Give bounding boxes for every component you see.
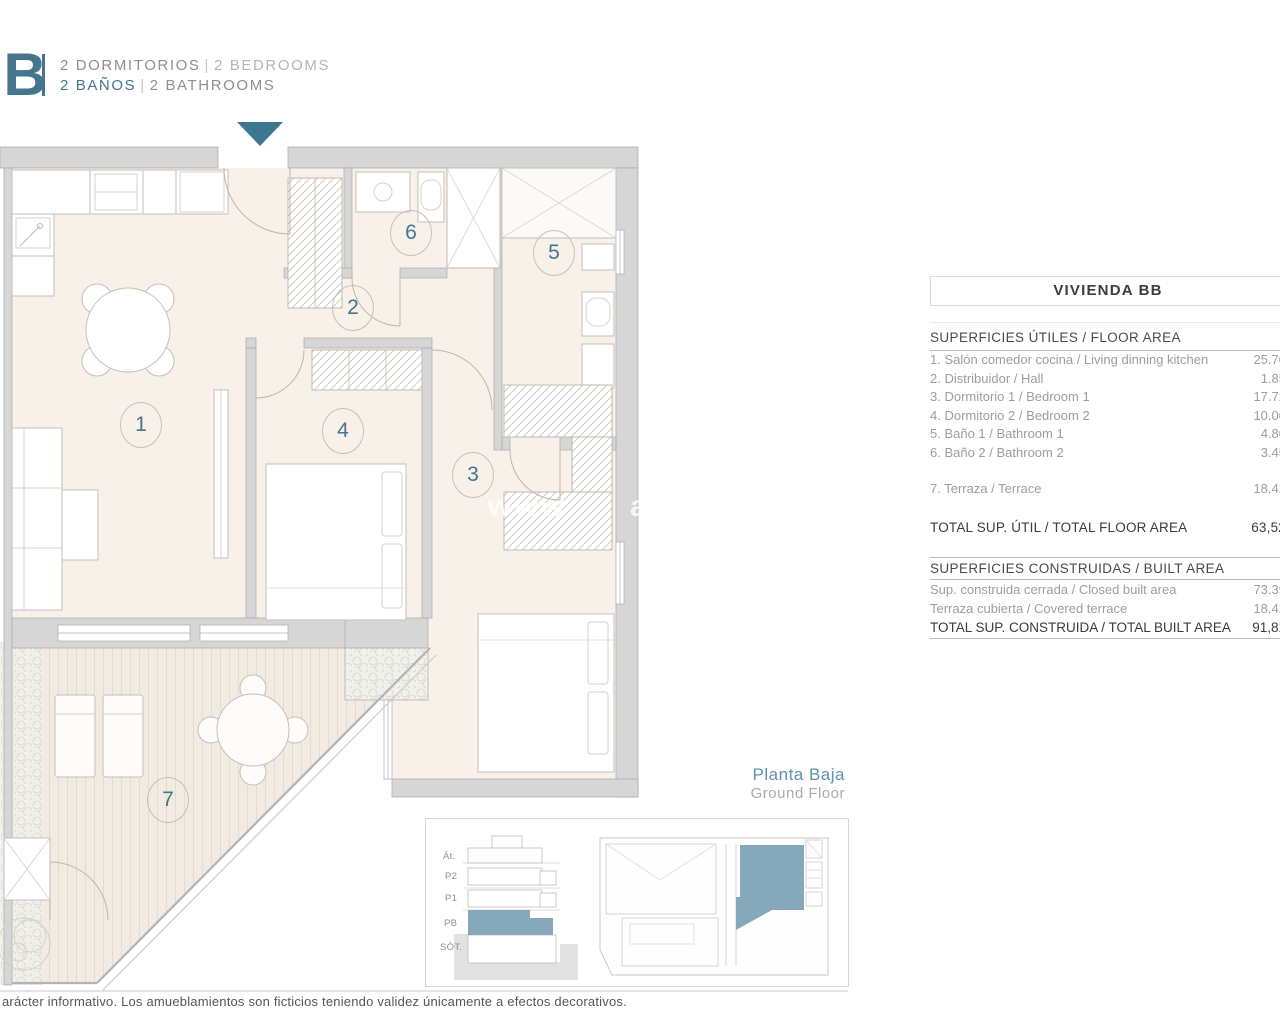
header-summary: 2 DORMITORIOS|2 BEDROOMS 2 BAÑOS|2 BATHR…: [60, 56, 330, 96]
disclaimer-text: arácter informativo. Los amueblamientos …: [2, 994, 627, 1009]
area-row: 5. Baño 1 / Bathroom 14.80: [930, 425, 1280, 444]
room-number-living: 1: [120, 402, 162, 448]
area-summary-panel: VIVIENDA BB SUPERFICIES ÚTILES / FLOOR A…: [930, 276, 1280, 639]
total-floor-area-row: TOTAL SUP. ÚTIL / TOTAL FLOOR AREA63,52: [930, 519, 1280, 537]
hall-closet: [288, 178, 342, 308]
location-inset-box: [425, 818, 849, 987]
built-area-bottomline: [930, 638, 1280, 639]
area-row: 4. Dormitorio 2 / Bedroom 210.00: [930, 407, 1280, 426]
floorplan-page: { "header": { "logo": "BB", "line1_left"…: [0, 0, 1280, 1024]
total-built-area-row: TOTAL SUP. CONSTRUIDA / TOTAL BUILT AREA…: [930, 618, 1280, 637]
bathrooms-line: 2 BAÑOS|2 BATHROOMS: [60, 76, 330, 96]
watermark-fragment: arp: [630, 490, 686, 524]
panel-divider: [930, 322, 1280, 323]
floor-name-label: Planta Baja Ground Floor: [751, 765, 845, 803]
section-label-pb: PB: [444, 918, 457, 929]
section-label-sotano: SÓT.: [440, 942, 462, 953]
bedrooms-line: 2 DORMITORIOS|2 BEDROOMS: [60, 56, 330, 76]
entrance-arrow-icon: [237, 122, 283, 146]
watermark-fragment: www: [488, 490, 567, 524]
storage-closet: [447, 168, 500, 268]
room-number-hall: 2: [332, 285, 374, 331]
dining-table: [82, 284, 174, 376]
room-number-bath1: 5: [533, 230, 575, 276]
area-row: 2. Distribuidor / Hall1.85: [930, 370, 1280, 389]
room-number-bath2: 6: [390, 210, 432, 256]
room-number-terrace: 7: [147, 777, 189, 823]
area-row: 3. Dormitorio 1 / Bedroom 117.72: [930, 388, 1280, 407]
room-number-bedroom2: 4: [322, 408, 364, 454]
header-divider: [42, 54, 45, 96]
built-area-header: SUPERFICIES CONSTRUIDAS / BUILT AREA: [930, 561, 1280, 577]
floor-name-es: Planta Baja: [751, 765, 845, 784]
floor-area-header: SUPERFICIES ÚTILES / FLOOR AREA: [930, 331, 1280, 345]
vivienda-title-box: VIVIENDA BB: [930, 276, 1280, 306]
built-row: Sup. construida cerrada / Closed built a…: [930, 580, 1280, 599]
area-row: 1. Salón comedor cocina / Living dinning…: [930, 351, 1280, 370]
built-area-topline: [930, 557, 1280, 558]
section-label-p1: P1: [445, 893, 457, 904]
built-row: Terraza cubierta / Covered terrace18.42: [930, 599, 1280, 618]
section-label-p2: P2: [445, 871, 457, 882]
terrace-row: 7. Terraza / Terrace18.42: [930, 480, 1280, 499]
section-label-atico: Át.: [443, 851, 456, 862]
floor-name-en: Ground Floor: [751, 784, 845, 803]
area-row: 6. Baño 2 / Bathroom 23.45: [930, 444, 1280, 463]
